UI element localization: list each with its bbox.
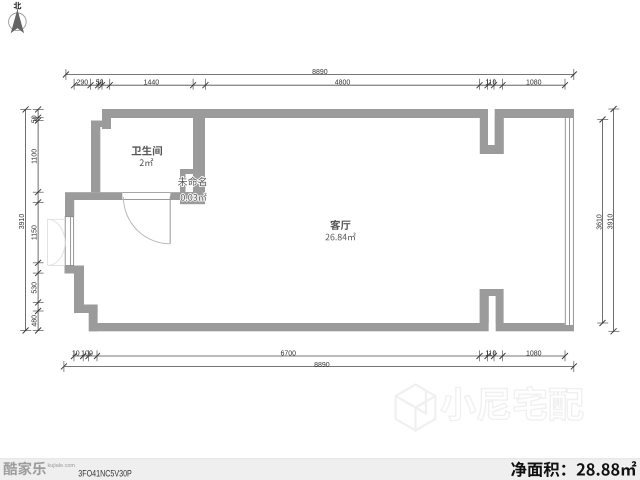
svg-text:480: 480 <box>32 315 39 327</box>
svg-text:50: 50 <box>32 115 39 123</box>
svg-text:100: 100 <box>81 350 93 357</box>
svg-text:3FO41NC5V30P: 3FO41NC5V30P <box>78 468 132 478</box>
svg-text:530: 530 <box>32 282 39 294</box>
svg-text:3910: 3910 <box>607 214 614 230</box>
svg-text:8890: 8890 <box>312 69 328 76</box>
svg-text:1440: 1440 <box>144 80 160 87</box>
svg-text:3610: 3610 <box>596 214 603 230</box>
svg-text:110: 110 <box>485 80 496 87</box>
svg-text:3910: 3910 <box>19 214 26 230</box>
svg-text:kujiale.com: kujiale.com <box>48 463 76 469</box>
svg-text:1100: 1100 <box>32 149 39 164</box>
svg-text:4800: 4800 <box>335 80 351 87</box>
svg-text:1080: 1080 <box>526 80 542 87</box>
svg-text:50: 50 <box>96 80 104 87</box>
svg-text:6700: 6700 <box>281 350 297 357</box>
svg-text:8890: 8890 <box>314 362 330 369</box>
svg-text:1080: 1080 <box>526 350 542 357</box>
svg-text:1150: 1150 <box>32 225 39 240</box>
svg-text:290: 290 <box>76 80 88 87</box>
svg-text:10: 10 <box>72 350 80 357</box>
svg-text:110: 110 <box>485 350 496 357</box>
